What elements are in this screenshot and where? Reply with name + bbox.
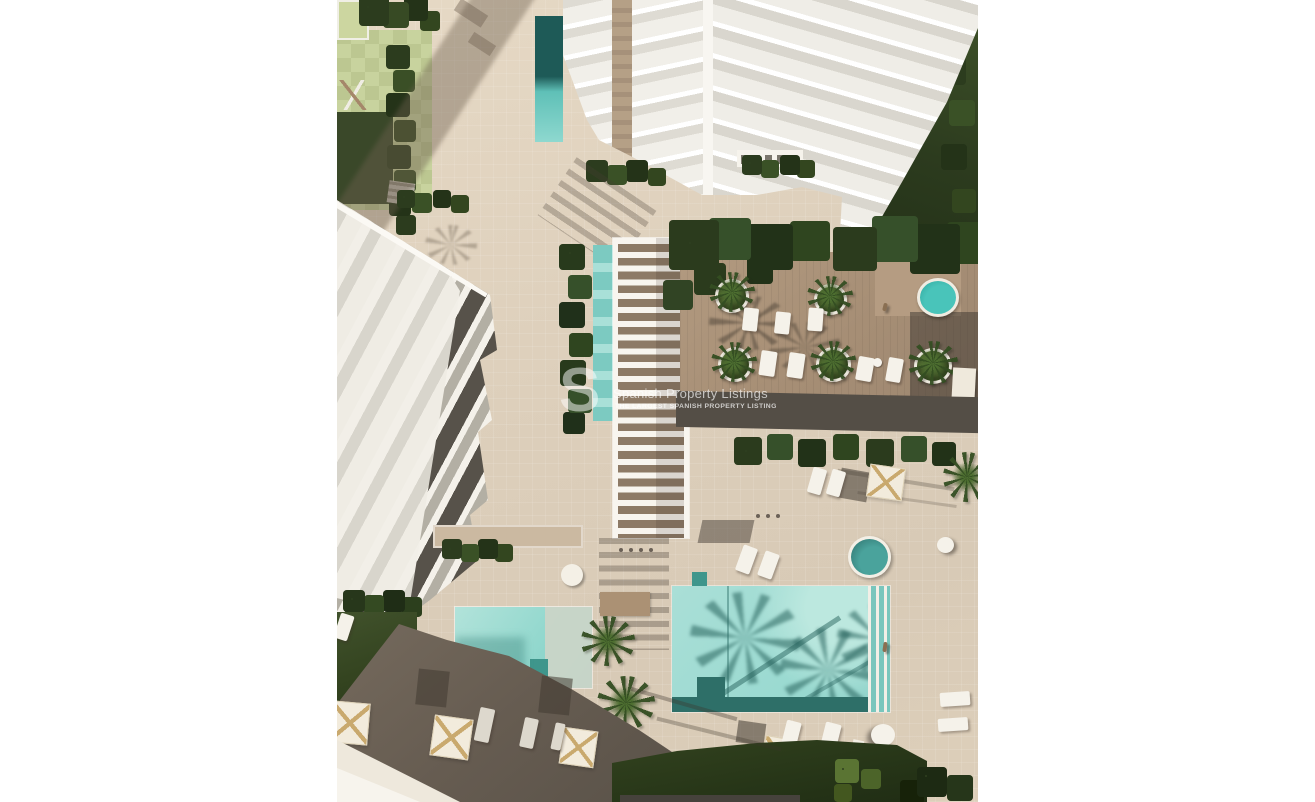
deck-tree-canopies — [689, 242, 691, 244]
pool-lane-line — [727, 586, 729, 697]
deck-side-table — [873, 358, 882, 367]
round-lounge-chair — [937, 537, 954, 553]
pool-inlet — [692, 572, 707, 586]
watermark-title: Spanish Property Listings — [613, 386, 768, 401]
square-parasol — [866, 464, 906, 502]
poolside-lounger — [807, 467, 828, 496]
planter-palm — [711, 342, 757, 382]
deck-lounger — [742, 307, 759, 331]
jacuzzi — [848, 536, 891, 578]
palm-planter — [600, 592, 650, 616]
corner-dark-trees — [925, 775, 927, 777]
round-lounge-chair — [871, 724, 895, 746]
screenshot-root: S Spanish Property Listings THE LARGEST … — [0, 0, 1315, 802]
deck-lounger — [774, 311, 791, 334]
townhouse-block — [337, 195, 512, 635]
watermark-logo: S — [559, 360, 600, 422]
lower-hedge-trees — [745, 450, 747, 452]
palm-shadow-plaza — [425, 225, 477, 265]
bottom-wall-edge — [620, 795, 800, 802]
parasol-shadow — [415, 668, 450, 707]
tower-timber-mast — [612, 0, 632, 162]
deck-lounger — [786, 352, 805, 379]
paver-dots — [756, 514, 760, 518]
pergola-hedge — [569, 252, 571, 254]
planter-palm — [810, 341, 856, 381]
planter-palm — [908, 341, 958, 385]
tower-base-hedge-right — [749, 162, 751, 164]
deck-lounger — [758, 350, 777, 377]
planter-palm — [709, 272, 755, 312]
watermark-subtitle: THE LARGEST SPANISH PROPERTY LISTING — [615, 403, 777, 410]
walkway-bushes — [449, 548, 451, 550]
main-pool — [672, 586, 890, 712]
palm-tree — [581, 616, 635, 666]
deck-plunge-pool — [917, 278, 959, 317]
playground-slide — [339, 80, 369, 110]
kiosk-shadow — [698, 520, 755, 543]
hedge-column — [395, 48, 397, 50]
corner-lounger — [940, 691, 971, 707]
square-parasol — [429, 714, 473, 760]
square-parasol — [559, 727, 599, 769]
poolside-lounger — [735, 544, 758, 575]
square-parasol — [337, 700, 371, 745]
corner-trees — [367, 6, 369, 8]
garden-shed-roof — [337, 0, 369, 40]
tower-balustrade — [737, 150, 803, 170]
round-parasol — [561, 564, 583, 586]
tower-spine — [703, 0, 713, 262]
tower-lap-pool — [535, 16, 563, 142]
townhouse-foot-bushes — [351, 598, 353, 600]
paver-dots — [619, 548, 623, 552]
plaza-edge-bushes — [403, 196, 405, 198]
lawn-shrubs — [842, 768, 844, 770]
poolside-lounger — [757, 550, 780, 580]
paver-walkway — [433, 525, 583, 548]
corner-lounger — [938, 717, 969, 732]
right-edge-palm — [943, 452, 978, 502]
deck-lounger — [807, 308, 824, 332]
parasol-shadow — [538, 675, 573, 715]
aerial-render-image: S Spanish Property Listings THE LARGEST … — [337, 0, 978, 802]
